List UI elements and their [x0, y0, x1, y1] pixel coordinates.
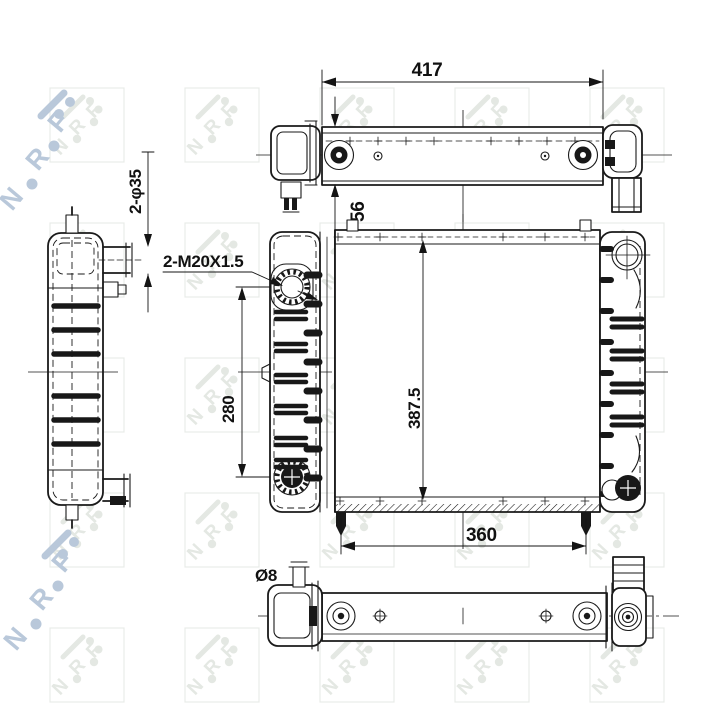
dim-280-label: 280: [219, 396, 238, 423]
drain-plug-bottom: [615, 604, 642, 631]
bottom-boss-left: [327, 602, 355, 630]
radiator-technical-drawing: N R F N R F: [0, 0, 720, 720]
side-inlet-pipe: [99, 243, 141, 277]
dim-m20-label: 2-M20X1.5: [163, 252, 243, 271]
side-outlet-pipe: [103, 474, 130, 507]
side-connector: [103, 282, 126, 297]
dim-2-phi35: 2-φ35: [126, 152, 154, 312]
bottom-boss-right: [573, 602, 601, 630]
front-right-tank: [600, 232, 650, 512]
top-mount-boss-right: [569, 141, 598, 170]
top-outlet-fitting: [603, 125, 642, 212]
dim-phi8-label: Ø8: [255, 566, 277, 585]
bottom-right-tank: [606, 557, 653, 651]
top-inlet-fitting: [271, 121, 320, 212]
front-core: [334, 220, 600, 536]
dim-56-label: 56: [348, 201, 369, 222]
side-view: 2-φ35: [28, 152, 154, 528]
side-top-pin: [66, 207, 78, 233]
dim-387-label: 387.5: [405, 388, 424, 429]
phi8-pin: [289, 562, 309, 587]
dim-417-label: 417: [412, 60, 443, 81]
top-mount-boss-left: [325, 141, 354, 170]
dim-360-label: 360: [466, 525, 497, 546]
dim-2-phi35-label: 2-φ35: [126, 169, 145, 214]
bottom-view: Ø8: [255, 557, 682, 651]
radiator-technical-drawing-page: N R F N R F: [0, 0, 720, 720]
top-view: 417 56: [256, 60, 672, 232]
